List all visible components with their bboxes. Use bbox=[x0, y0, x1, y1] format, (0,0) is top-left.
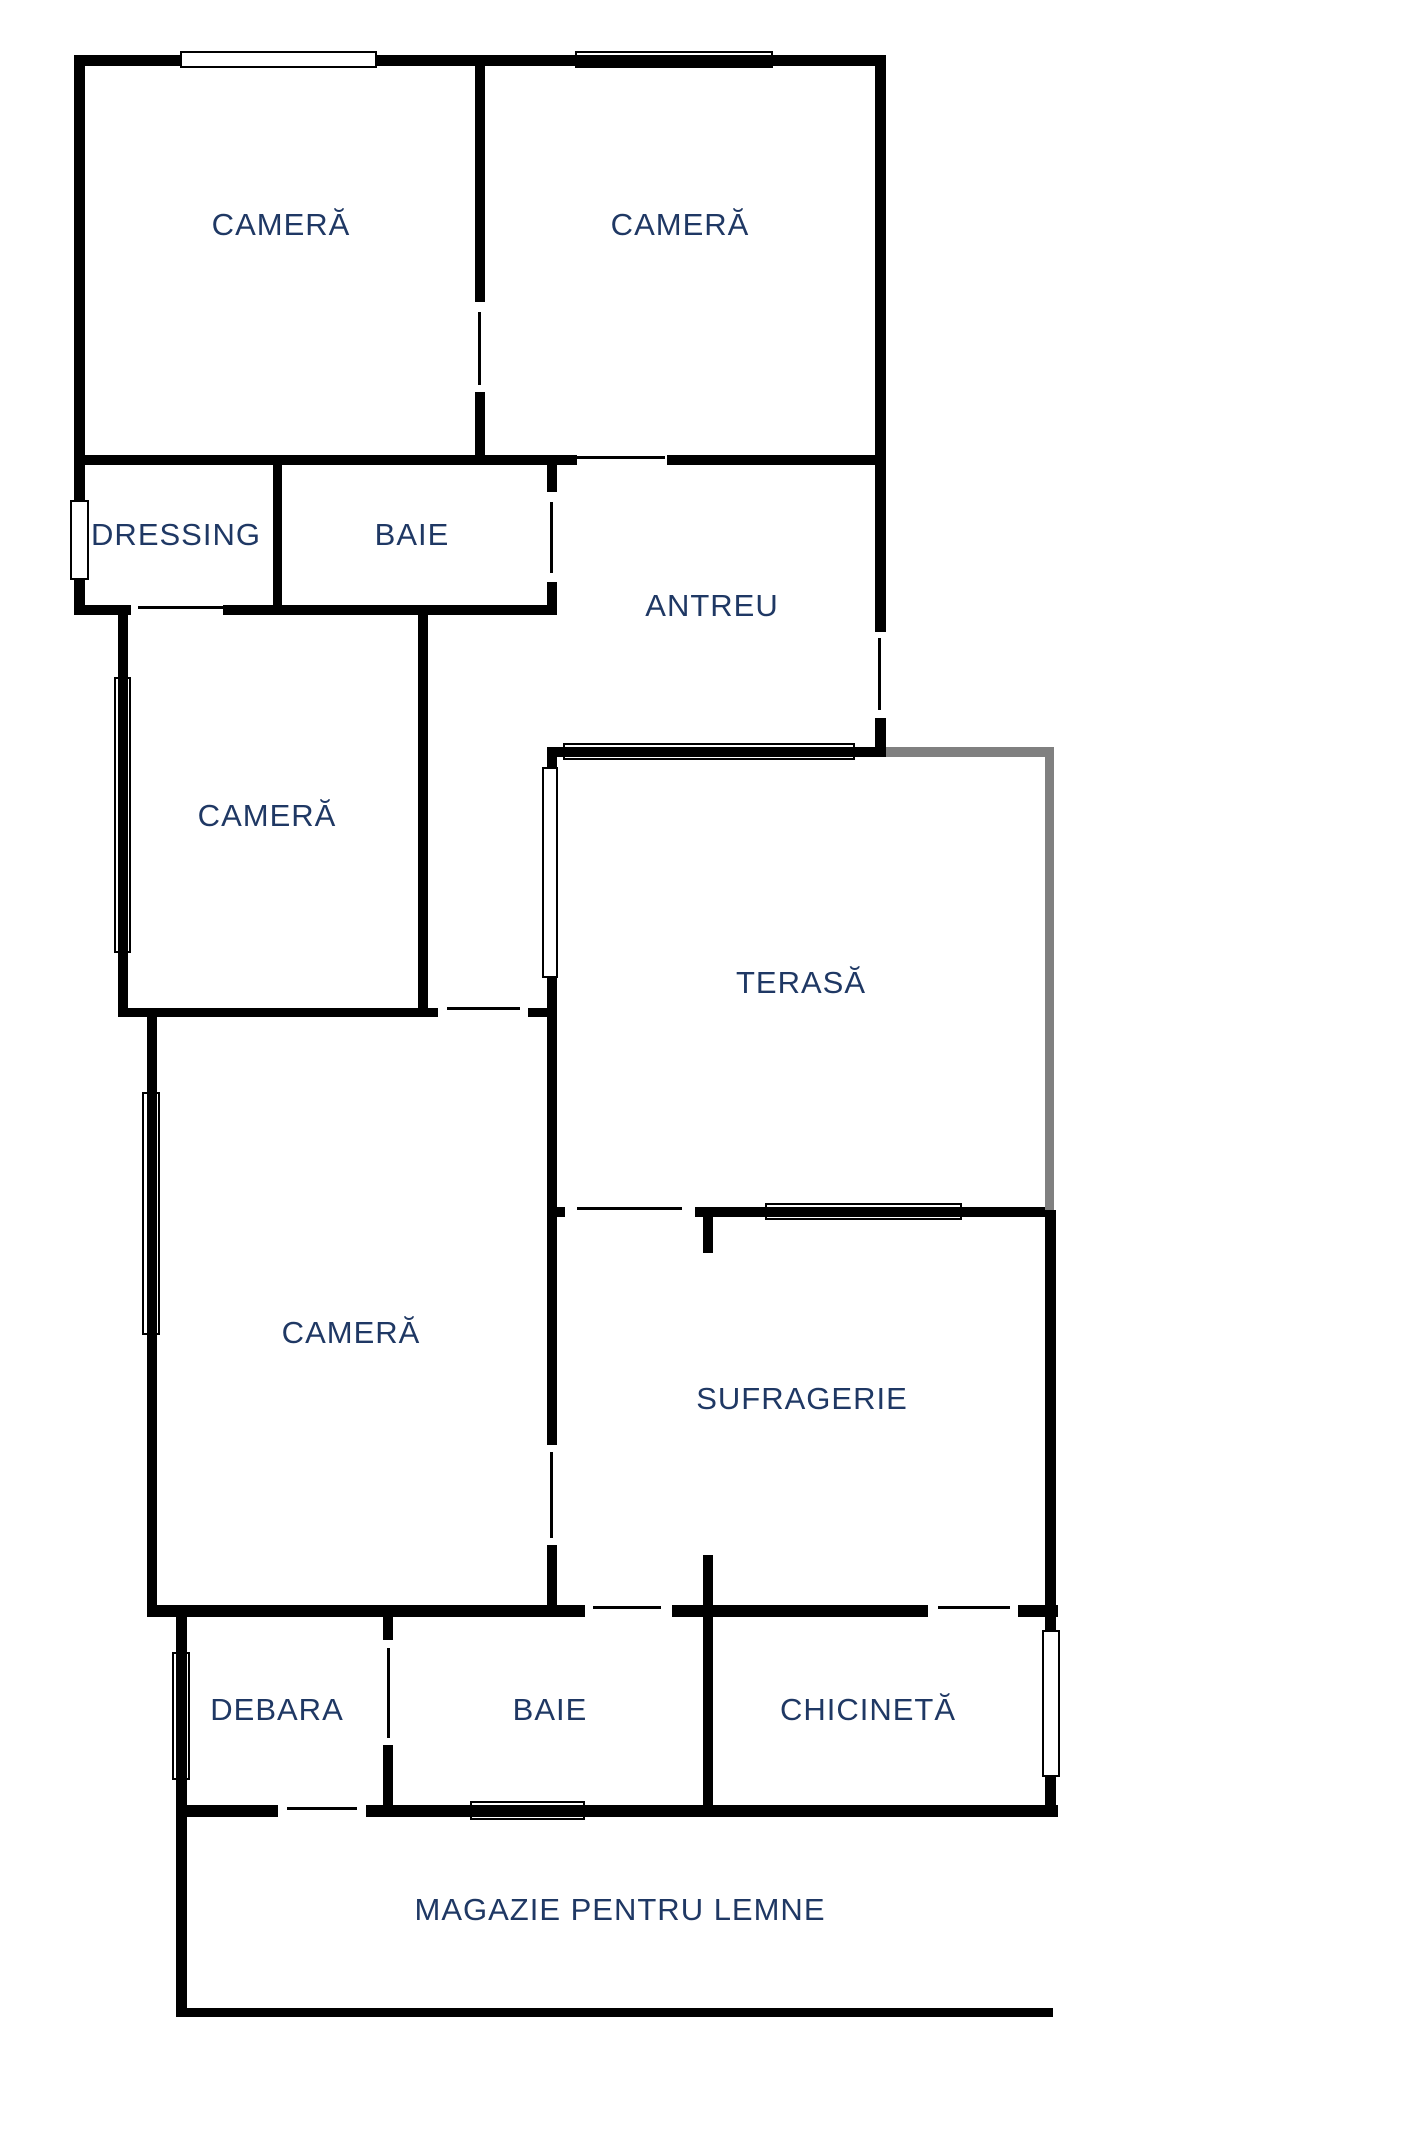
room-label-chicineta: CHICINETĂ bbox=[780, 1692, 956, 1728]
wall-camera3-right bbox=[418, 615, 428, 1008]
door-terasa-sufragerie bbox=[577, 1207, 682, 1210]
wall-debara-baie-divider-top bbox=[383, 1617, 393, 1640]
door-camera1-camera2 bbox=[478, 312, 481, 385]
room-label-dressing: DRESSING bbox=[91, 517, 261, 553]
wall-top-divider-upper bbox=[475, 55, 485, 302]
room-label-camera-4: CAMERĂ bbox=[282, 1315, 421, 1351]
room-label-sufragerie: SUFRAGERIE bbox=[696, 1381, 908, 1417]
wall-mid1-right bbox=[667, 455, 886, 465]
window-terasa-left bbox=[542, 767, 558, 978]
wall-right-outer-lower bbox=[875, 718, 886, 757]
wall-dressing-baie-divider bbox=[273, 465, 282, 615]
room-label-debara: DEBARA bbox=[210, 1692, 343, 1728]
window-camera3-left bbox=[114, 677, 131, 953]
room-label-terasa: TERASĂ bbox=[736, 965, 866, 1001]
wall-magazie-bottom bbox=[176, 2008, 1053, 2017]
door-antreu-exterior bbox=[878, 638, 881, 710]
wall-baie1-right-lower bbox=[547, 582, 557, 615]
wall-terasa-right-gray bbox=[1045, 747, 1054, 1210]
door-debara-magazie bbox=[287, 1807, 357, 1810]
wall-terasa-left-lower bbox=[547, 1545, 557, 1617]
door-camera4-sufragerie bbox=[550, 1452, 553, 1538]
door-sufragerie-chicineta bbox=[938, 1606, 1010, 1609]
door-camera2-antreu bbox=[577, 456, 665, 459]
window-dressing-left bbox=[70, 500, 89, 580]
window-terasa-top bbox=[563, 743, 855, 760]
room-label-baie-2: BAIE bbox=[513, 1692, 588, 1728]
room-label-magazie: MAGAZIE PENTRU LEMNE bbox=[415, 1892, 826, 1928]
door-baie1-antreu bbox=[550, 502, 553, 573]
window-camera2-top bbox=[575, 51, 773, 68]
room-label-camera-1: CAMERĂ bbox=[212, 207, 351, 243]
wall-debara-baie-divider-bot bbox=[383, 1745, 393, 1807]
room-label-baie-1: BAIE bbox=[375, 517, 450, 553]
window-terasa-bottom bbox=[765, 1203, 962, 1220]
room-label-antreu: ANTREU bbox=[645, 588, 778, 624]
wall-sufragerie-stub bbox=[703, 1217, 713, 1253]
window-chicineta-right bbox=[1042, 1630, 1060, 1777]
window-camera4-left bbox=[142, 1092, 160, 1335]
wall-bottomrow-top-left bbox=[147, 1605, 585, 1617]
room-label-camera-3: CAMERĂ bbox=[198, 798, 337, 834]
wall-mid1-left bbox=[74, 455, 577, 465]
wall-terasa-top-gray bbox=[875, 747, 1054, 757]
window-debara-left bbox=[172, 1652, 190, 1780]
room-label-camera-2: CAMERĂ bbox=[611, 207, 750, 243]
wall-right-outer-upper bbox=[875, 55, 886, 632]
door-dressing-camera3 bbox=[138, 606, 223, 609]
window-camera1-top bbox=[180, 51, 377, 68]
wall-baie1-right-upper bbox=[547, 465, 557, 492]
wall-baie2-chicineta-divider bbox=[703, 1555, 713, 1807]
door-sufragerie-baie2 bbox=[593, 1606, 661, 1609]
wall-camera3-bottom-left bbox=[118, 1008, 438, 1017]
floor-plan: CAMERĂCAMERĂDRESSINGBAIEANTREUCAMERĂTERA… bbox=[0, 0, 1417, 2151]
window-magazie-top bbox=[470, 1801, 585, 1820]
wall-magazie-top-left bbox=[176, 1805, 278, 1817]
door-debara-baie2 bbox=[387, 1648, 390, 1738]
wall-top-divider-lower bbox=[475, 392, 485, 465]
door-camera4-hall bbox=[447, 1007, 520, 1010]
